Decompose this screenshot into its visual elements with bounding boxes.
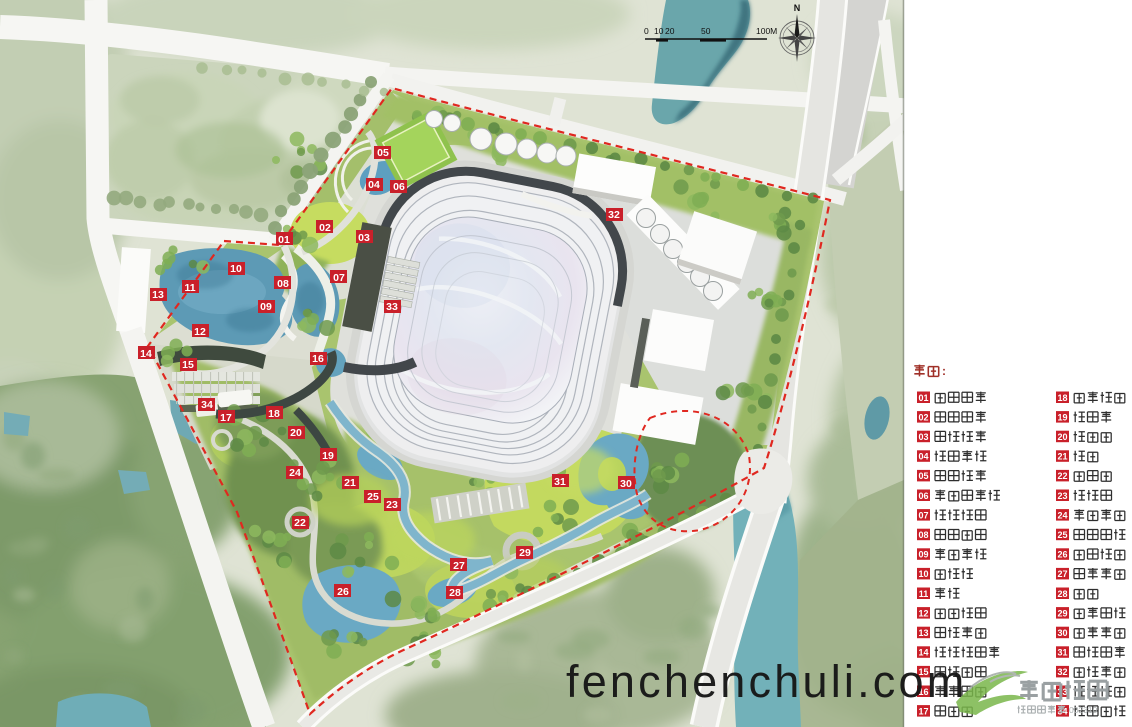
svg-text:11: 11 <box>919 589 929 599</box>
svg-text:21: 21 <box>344 477 356 489</box>
svg-text:20: 20 <box>665 26 675 36</box>
svg-text:20: 20 <box>1057 432 1067 442</box>
svg-text:23: 23 <box>1057 491 1067 501</box>
svg-text:06: 06 <box>393 181 405 193</box>
svg-text:28: 28 <box>1057 589 1067 599</box>
svg-text:34: 34 <box>201 399 213 411</box>
svg-text:20: 20 <box>290 427 302 439</box>
svg-text:08: 08 <box>277 278 289 290</box>
svg-text::: : <box>942 364 946 378</box>
svg-text:22: 22 <box>294 517 306 529</box>
svg-text:01: 01 <box>918 393 928 403</box>
svg-text:03: 03 <box>918 432 928 442</box>
svg-text:31: 31 <box>554 476 566 488</box>
svg-text:04: 04 <box>918 452 928 462</box>
svg-text:13: 13 <box>152 289 164 301</box>
svg-text:07: 07 <box>333 272 345 284</box>
svg-text:10: 10 <box>918 569 928 579</box>
svg-text:26: 26 <box>1057 550 1067 560</box>
svg-text:21: 21 <box>1057 452 1067 462</box>
svg-text:05: 05 <box>918 471 928 481</box>
svg-text:10: 10 <box>230 263 242 275</box>
svg-text:50: 50 <box>701 26 711 36</box>
svg-text:27: 27 <box>453 560 465 572</box>
svg-text:09: 09 <box>260 301 272 313</box>
svg-text:29: 29 <box>1057 608 1067 618</box>
svg-text:19: 19 <box>322 450 334 462</box>
svg-text:24: 24 <box>289 467 301 479</box>
svg-text:26: 26 <box>337 586 349 598</box>
svg-text:28: 28 <box>449 587 461 599</box>
svg-text:09: 09 <box>918 550 928 560</box>
svg-text:08: 08 <box>918 530 928 540</box>
svg-text:30: 30 <box>1057 628 1067 638</box>
svg-text:25: 25 <box>367 491 379 503</box>
svg-text:12: 12 <box>918 608 928 618</box>
svg-text:14: 14 <box>140 348 152 360</box>
svg-text:07: 07 <box>918 510 928 520</box>
svg-text:11: 11 <box>184 282 195 294</box>
svg-text:18: 18 <box>1057 393 1067 403</box>
svg-text:18: 18 <box>268 408 280 420</box>
svg-text:30: 30 <box>620 478 632 490</box>
svg-text:fenchenchuli.com: fenchenchuli.com <box>566 656 967 707</box>
svg-text:33: 33 <box>386 301 398 313</box>
svg-text:17: 17 <box>918 706 928 716</box>
svg-text:15: 15 <box>182 359 194 371</box>
svg-text:13: 13 <box>918 628 928 638</box>
svg-text:02: 02 <box>319 222 331 234</box>
svg-text:05: 05 <box>377 147 389 159</box>
svg-text:16: 16 <box>312 353 324 365</box>
svg-text:17: 17 <box>220 412 232 424</box>
svg-text:N: N <box>794 3 801 13</box>
svg-text:24: 24 <box>1057 510 1067 520</box>
svg-text:002310: 002310 <box>1069 705 1098 715</box>
svg-text:10: 10 <box>654 26 664 36</box>
svg-text:22: 22 <box>1057 471 1067 481</box>
svg-text:12: 12 <box>194 326 206 338</box>
svg-text:06: 06 <box>918 491 928 501</box>
svg-text:32: 32 <box>608 209 620 221</box>
svg-text:33: 33 <box>1057 687 1067 697</box>
svg-text:19: 19 <box>1057 412 1067 422</box>
svg-text:23: 23 <box>386 499 398 511</box>
svg-text:25: 25 <box>1057 530 1067 540</box>
svg-text:01: 01 <box>278 234 290 246</box>
svg-text:0: 0 <box>644 26 649 36</box>
svg-text:03: 03 <box>358 232 370 244</box>
svg-text:31: 31 <box>1057 648 1067 658</box>
svg-text:04: 04 <box>368 179 380 191</box>
svg-text:100M: 100M <box>756 26 777 36</box>
svg-text:32: 32 <box>1057 667 1067 677</box>
svg-text:02: 02 <box>918 412 928 422</box>
svg-text:27: 27 <box>1057 569 1067 579</box>
svg-text:29: 29 <box>519 547 531 559</box>
